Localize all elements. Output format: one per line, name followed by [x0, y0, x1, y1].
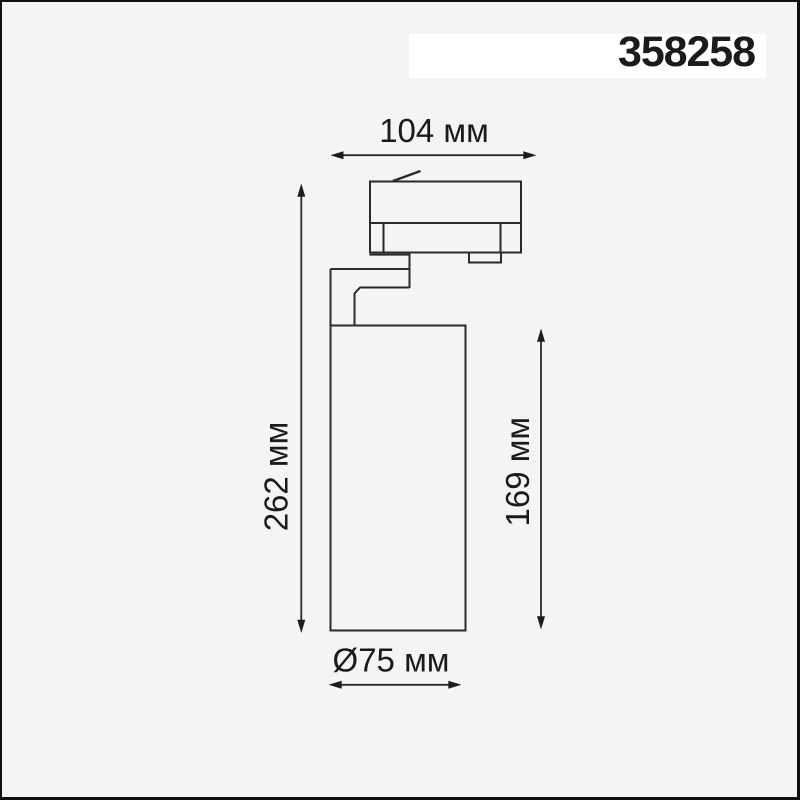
- svg-text:Ø75 мм: Ø75 мм: [333, 642, 450, 679]
- svg-text:169 мм: 169 мм: [499, 417, 536, 527]
- svg-text:262 мм: 262 мм: [258, 422, 295, 532]
- svg-text:104 мм: 104 мм: [379, 112, 489, 149]
